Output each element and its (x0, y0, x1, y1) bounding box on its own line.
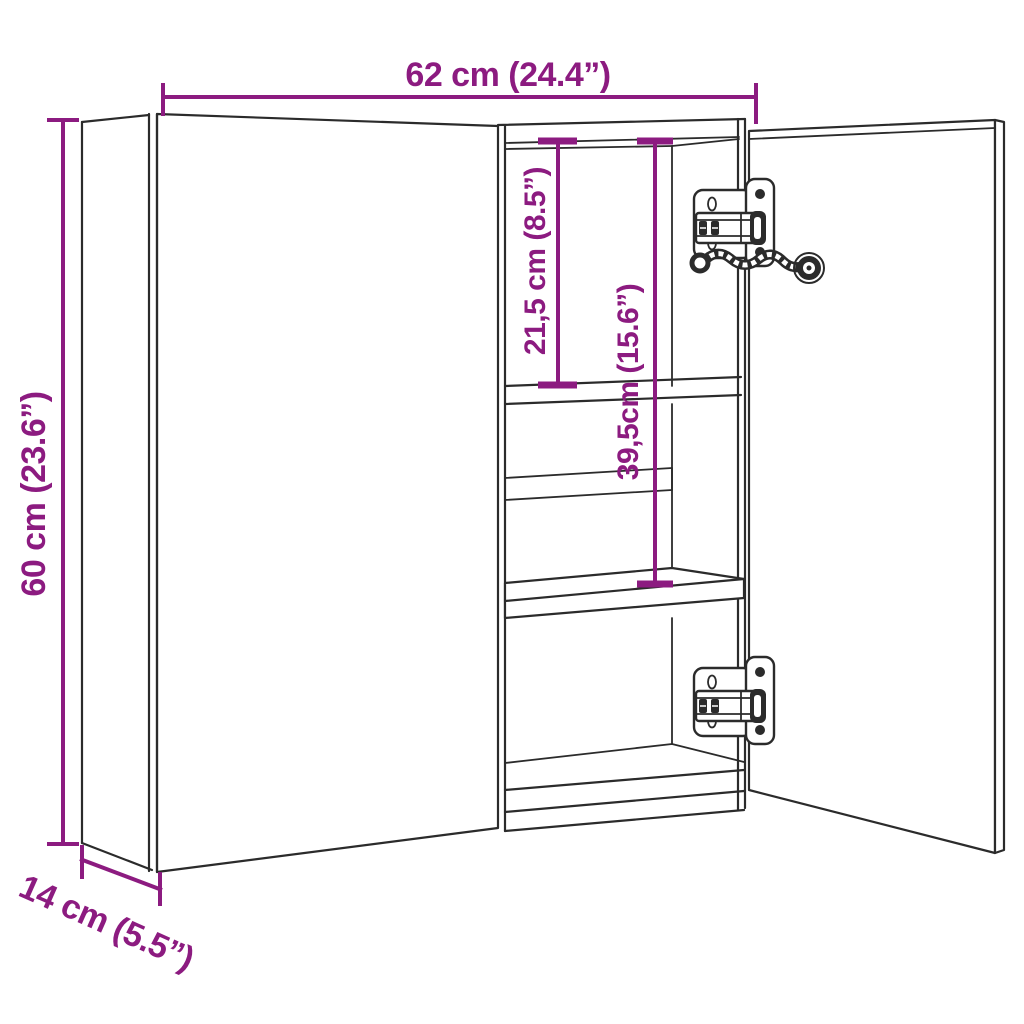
middle-shelf-dimension-label: 39,5cm (15.6”) (612, 284, 645, 480)
right-door-open (749, 120, 1004, 853)
width-dimension-label: 62 cm (24.4”) (405, 56, 610, 94)
hinge-bottom (694, 657, 774, 744)
left-side-panel (82, 115, 152, 870)
left-door-closed (149, 114, 498, 872)
cabinet-line-drawing: 62 cm (24.4”) 60 cm (23.6”) 14 cm (5.5”)… (0, 0, 1024, 1024)
top-shelf-dimension: 21,5 cm (8.5”) (519, 141, 577, 385)
mirror-cabinet-dimension-diagram: 62 cm (24.4”) 60 cm (23.6”) 14 cm (5.5”)… (0, 0, 1024, 1024)
shelf-lower (505, 568, 744, 618)
height-dimension: 60 cm (23.6”) (15, 120, 79, 844)
height-dimension-label: 60 cm (23.6”) (15, 391, 53, 596)
width-dimension: 62 cm (24.4”) (163, 56, 756, 124)
middle-shelf-dimension: 39,5cm (15.6”) (612, 141, 673, 584)
shelf-middle-back-edge (505, 468, 672, 500)
top-shelf-dimension-label: 21,5 cm (8.5”) (519, 167, 552, 355)
depth-dimension-label: 14 cm (5.5”) (13, 868, 199, 979)
